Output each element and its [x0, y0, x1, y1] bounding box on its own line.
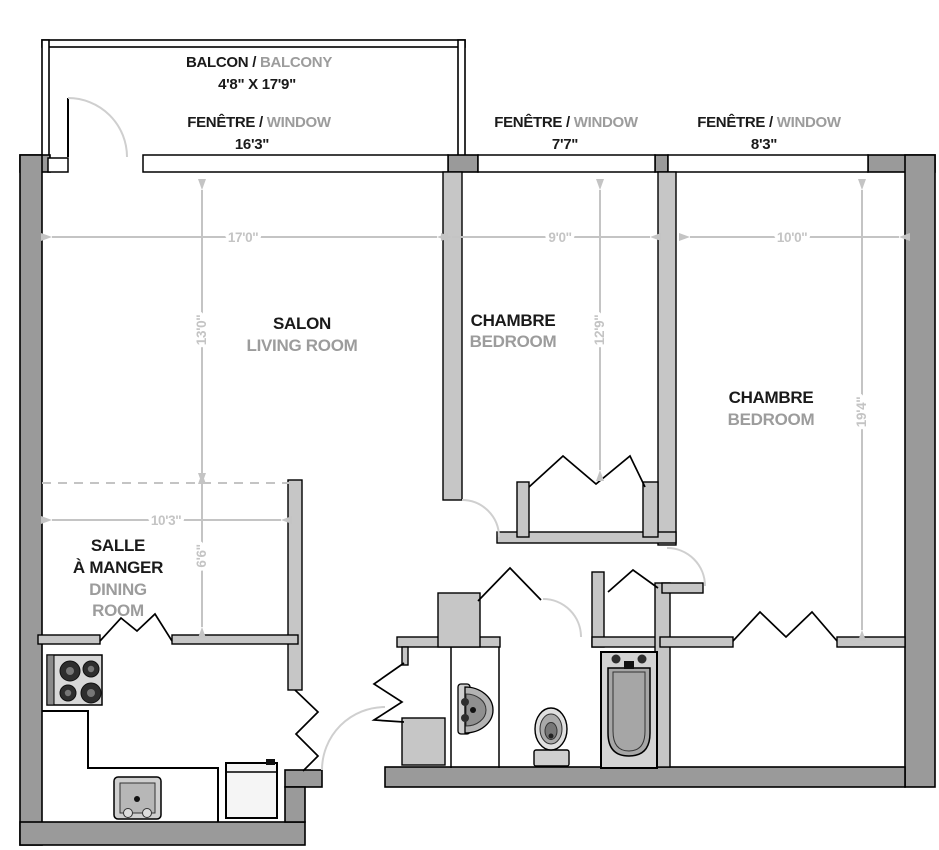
bedroom-2-folding-door [608, 570, 658, 592]
svg-text:ROOM: ROOM [92, 601, 144, 620]
entry-closet-folding-door [374, 663, 404, 722]
toilet-icon [534, 708, 569, 766]
window-3-label: FENÊTRE / WINDOW [697, 113, 842, 131]
floor-plan-svg: 17'0'' 13'0'' 9'0'' 12'9'' 10'0'' 19'4''… [0, 0, 939, 850]
window-3 [668, 155, 868, 172]
balcony-size: 4'8" X 17'9" [218, 76, 296, 93]
svg-text:BEDROOM: BEDROOM [470, 332, 557, 351]
dim-salon-depth: 13'0'' [194, 315, 209, 345]
svg-text:CHAMBRE: CHAMBRE [729, 388, 814, 407]
window-3-size: 8'3" [751, 136, 777, 153]
kitchen-sink-icon [114, 777, 161, 819]
room-label-dining: SALLE À MANGER DINING ROOM [73, 536, 163, 620]
svg-text:SALLE: SALLE [91, 536, 145, 555]
windows [143, 155, 868, 172]
dim-bedroom2-depth: 19'4'' [854, 397, 869, 427]
svg-text:DINING: DINING [89, 580, 147, 599]
svg-text:LIVING ROOM: LIVING ROOM [247, 336, 358, 355]
window-2-label: FENÊTRE / WINDOW [494, 113, 639, 131]
dim-salon-width: 17'0'' [228, 230, 258, 245]
dim-dining-width: 10'3'' [151, 513, 181, 528]
labels-top: BALCON / BALCONY 4'8" X 17'9" FENÊTRE / … [186, 54, 842, 153]
bathtub-icon [601, 652, 657, 768]
balcony-label: BALCON / BALCONY [186, 54, 332, 71]
room-label-salon: SALON LIVING ROOM [247, 314, 358, 355]
window-2-size: 7'7" [552, 136, 578, 153]
dim-bedroom1-width: 9'0'' [548, 230, 571, 245]
svg-text:BEDROOM: BEDROOM [728, 410, 815, 429]
window-1-size: 16'3" [235, 136, 269, 153]
door-bathroom [543, 599, 581, 637]
stove-icon [47, 655, 102, 705]
svg-text:CHAMBRE: CHAMBRE [471, 311, 556, 330]
vanity-sink-icon [458, 684, 493, 734]
svg-text:SALON: SALON [273, 314, 331, 333]
bathroom [458, 652, 657, 768]
door-bedroom-2 [667, 548, 705, 586]
window-2 [478, 155, 655, 172]
bathroom-folding-door [478, 568, 541, 601]
window-1 [143, 155, 448, 172]
kitchen-folding-door [295, 690, 318, 771]
svg-text:À MANGER: À MANGER [73, 558, 163, 577]
door-entry [322, 707, 385, 770]
window-1-label: FENÊTRE / WINDOW [187, 113, 332, 131]
floor-plan-page: 17'0'' 13'0'' 9'0'' 12'9'' 10'0'' 19'4''… [0, 0, 939, 850]
door-bedroom-1 [462, 500, 499, 537]
bedroom-1-closet-bifold [529, 456, 645, 487]
fridge-icon [226, 759, 277, 818]
dim-bedroom2-width: 10'0'' [777, 230, 807, 245]
interior-walls [38, 172, 905, 768]
bedroom-2-closet-bifold [733, 612, 837, 641]
room-label-bedroom-1: CHAMBRE BEDROOM [470, 311, 557, 351]
door-balcony [68, 98, 127, 157]
dim-dining-depth: 6'6'' [194, 544, 209, 567]
outer-walls [20, 155, 935, 845]
kitchen [42, 655, 277, 822]
dim-bedroom1-depth: 12'9'' [592, 315, 607, 345]
room-label-bedroom-2: CHAMBRE BEDROOM [728, 388, 815, 429]
